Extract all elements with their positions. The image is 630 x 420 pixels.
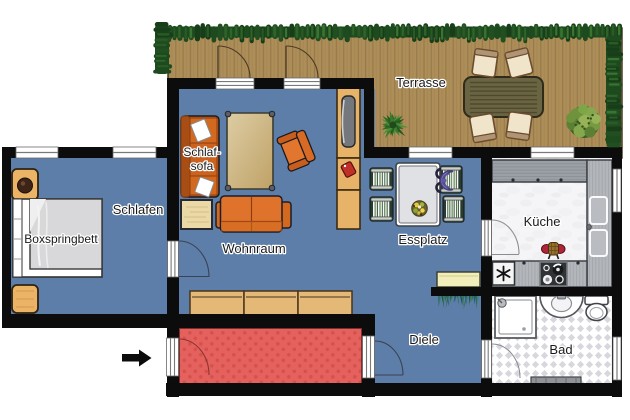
svg-text:Schlafen: Schlafen xyxy=(113,202,164,217)
svg-text:Bad: Bad xyxy=(549,342,572,357)
svg-text:Diele: Diele xyxy=(409,332,439,347)
svg-text:Küche: Küche xyxy=(524,214,561,229)
svg-text:Boxspringbett: Boxspringbett xyxy=(24,232,98,246)
svg-text:Essplatz: Essplatz xyxy=(398,232,447,247)
svg-text:Wohnraum: Wohnraum xyxy=(222,241,285,256)
svg-text:Schlaf-: Schlaf- xyxy=(183,145,220,159)
svg-text:Terrasse: Terrasse xyxy=(396,75,446,90)
svg-text:sofa: sofa xyxy=(191,159,214,173)
